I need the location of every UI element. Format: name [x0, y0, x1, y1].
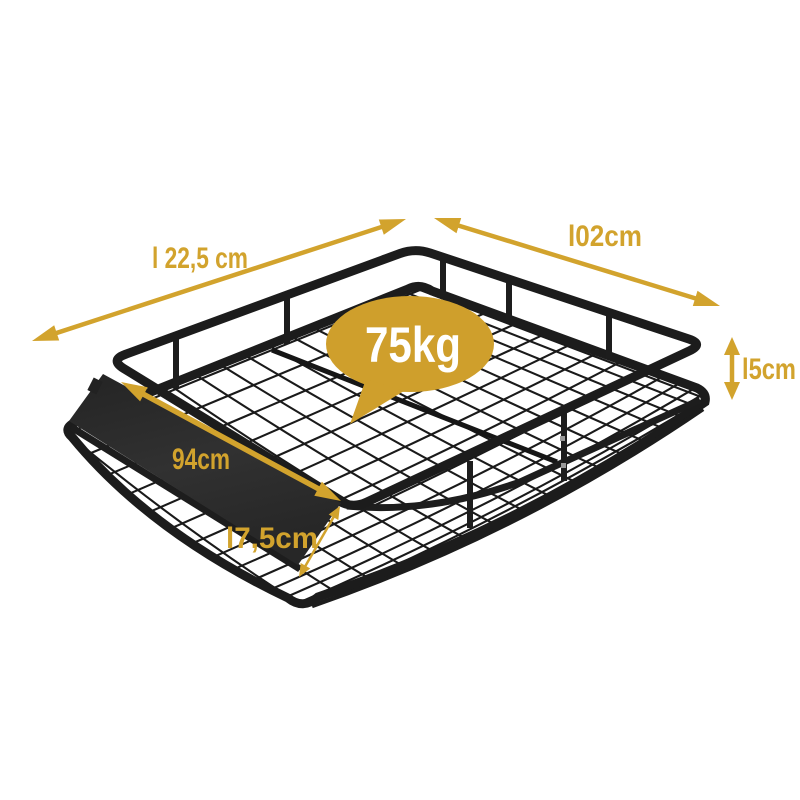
svg-text:l02cm: l02cm [568, 220, 642, 253]
svg-text:94cm: 94cm [172, 443, 230, 476]
svg-text:l 22,5 cm: l 22,5 cm [152, 242, 248, 275]
svg-text:l7,5cm: l7,5cm [226, 522, 318, 555]
svg-text:75kg: 75kg [365, 317, 461, 373]
svg-text:l5cm: l5cm [742, 353, 796, 386]
